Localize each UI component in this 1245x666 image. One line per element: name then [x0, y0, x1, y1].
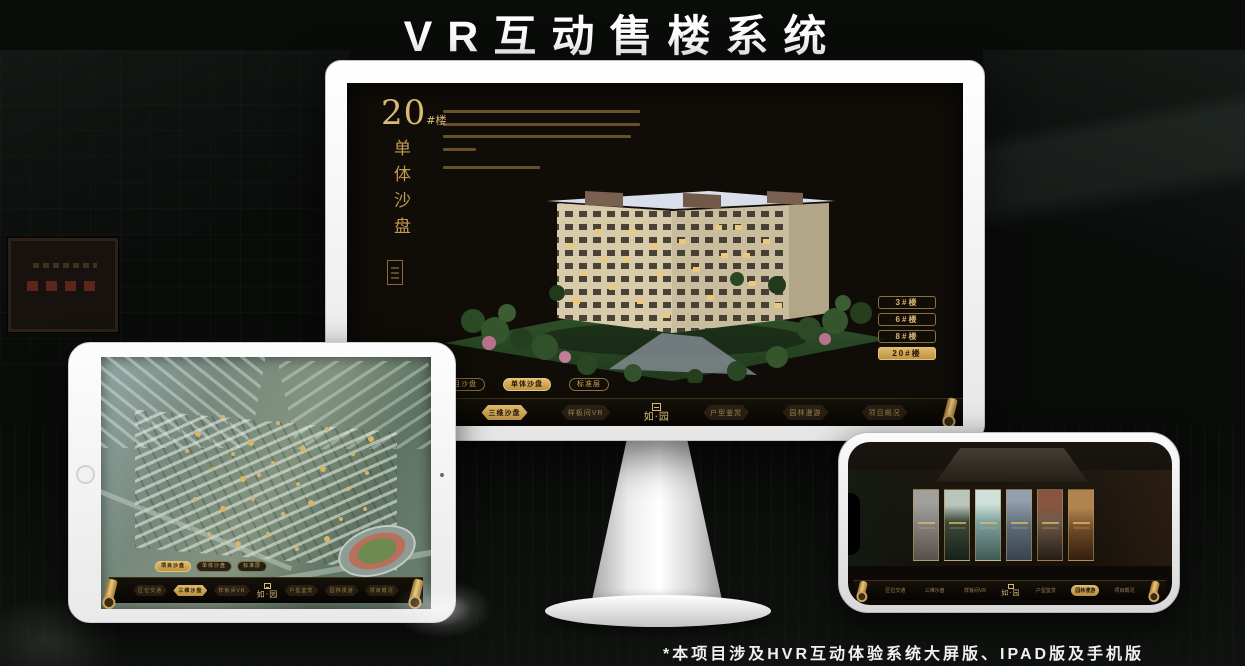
nav-item-project-overview[interactable]: 项目概况 — [1111, 585, 1139, 596]
nav-item-floorplan[interactable]: 户型鉴赏 — [284, 584, 318, 597]
nav-item-showroom-vr[interactable]: 样板间VR — [214, 584, 251, 597]
background-aerial-collage — [983, 50, 1245, 310]
subtab-project-sandtable[interactable]: 项目沙盘 — [155, 561, 191, 572]
scene-panel-aerial[interactable] — [975, 489, 1001, 561]
tablet-screen: 项目沙盘 单体沙盘 标准层 区位交通 三维沙盘 样板间VR 如·园 户型鉴赏 园… — [101, 357, 431, 609]
monitor-stand-base — [545, 595, 771, 627]
subtab-standard-floor[interactable]: 标准层 — [237, 561, 267, 572]
vr-sales-system-poster: VR互动售楼系统 20#楼 单体沙盘 — [0, 0, 1245, 666]
phone-screen: 区位交通 三维沙盘 样板间VR 如·园 户型鉴赏 园林漫游 项目概况 — [848, 442, 1172, 605]
phone-notch — [848, 493, 860, 555]
tablet-home-button[interactable] — [76, 465, 95, 484]
phone-navbar: 区位交通 三维沙盘 样板间VR 如·园 户型鉴赏 园林漫游 项目概况 — [854, 580, 1166, 600]
tablet-subtabs: 项目沙盘 单体沙盘 标准层 — [155, 561, 267, 572]
scene-panel-architecture[interactable] — [913, 489, 939, 561]
nav-item-garden-roam[interactable]: 园林漫游 — [325, 584, 359, 597]
nav-item-project-overview[interactable]: 项目概况 — [365, 584, 399, 597]
brand-logo: 如·园 — [257, 583, 279, 599]
nav-item-location[interactable]: 区位交通 — [133, 584, 167, 597]
nav-item-location[interactable]: 区位交通 — [881, 585, 909, 596]
nav-item-3d-sandtable[interactable]: 三维沙盘 — [173, 584, 207, 597]
tablet-camera-icon — [440, 473, 444, 477]
brand-logo-icon — [264, 583, 271, 589]
nav-item-garden-roam[interactable]: 园林漫游 — [1071, 585, 1099, 596]
footnote-text: *本项目涉及HVR互动体验系统大屏版、IPAD版及手机版 — [663, 640, 1144, 664]
brand-logo-icon — [1008, 584, 1014, 589]
pavilion-roof — [912, 448, 1112, 482]
scene-panel-landscape[interactable] — [1037, 489, 1063, 561]
nav-item-3d-sandtable[interactable]: 三维沙盘 — [921, 585, 949, 596]
scene-panel-interior[interactable] — [1068, 489, 1094, 561]
nav-item-showroom-vr[interactable]: 样板间VR — [960, 585, 990, 596]
tablet-navbar: 区位交通 三维沙盘 样板间VR 如·园 户型鉴赏 园林漫游 项目概况 — [109, 577, 423, 603]
monitor-stand-neck — [592, 438, 722, 600]
tablet-device: 项目沙盘 单体沙盘 标准层 区位交通 三维沙盘 样板间VR 如·园 户型鉴赏 园… — [68, 342, 456, 623]
background-map-collage — [0, 50, 350, 365]
page-title: VR互动售楼系统 — [0, 2, 1245, 64]
building-marker-icons[interactable] — [101, 357, 105, 361]
subtab-single-sandtable[interactable]: 单体沙盘 — [196, 561, 232, 572]
nav-item-floorplan[interactable]: 户型鉴赏 — [1032, 585, 1060, 596]
award-plaque — [8, 238, 118, 332]
scene-panel-garden[interactable] — [944, 489, 970, 561]
scene-panel-building[interactable] — [1006, 489, 1032, 561]
brand-logo: 如·园 — [1001, 584, 1020, 597]
phone-device: 区位交通 三维沙盘 样板间VR 如·园 户型鉴赏 园林漫游 项目概况 — [838, 432, 1180, 613]
